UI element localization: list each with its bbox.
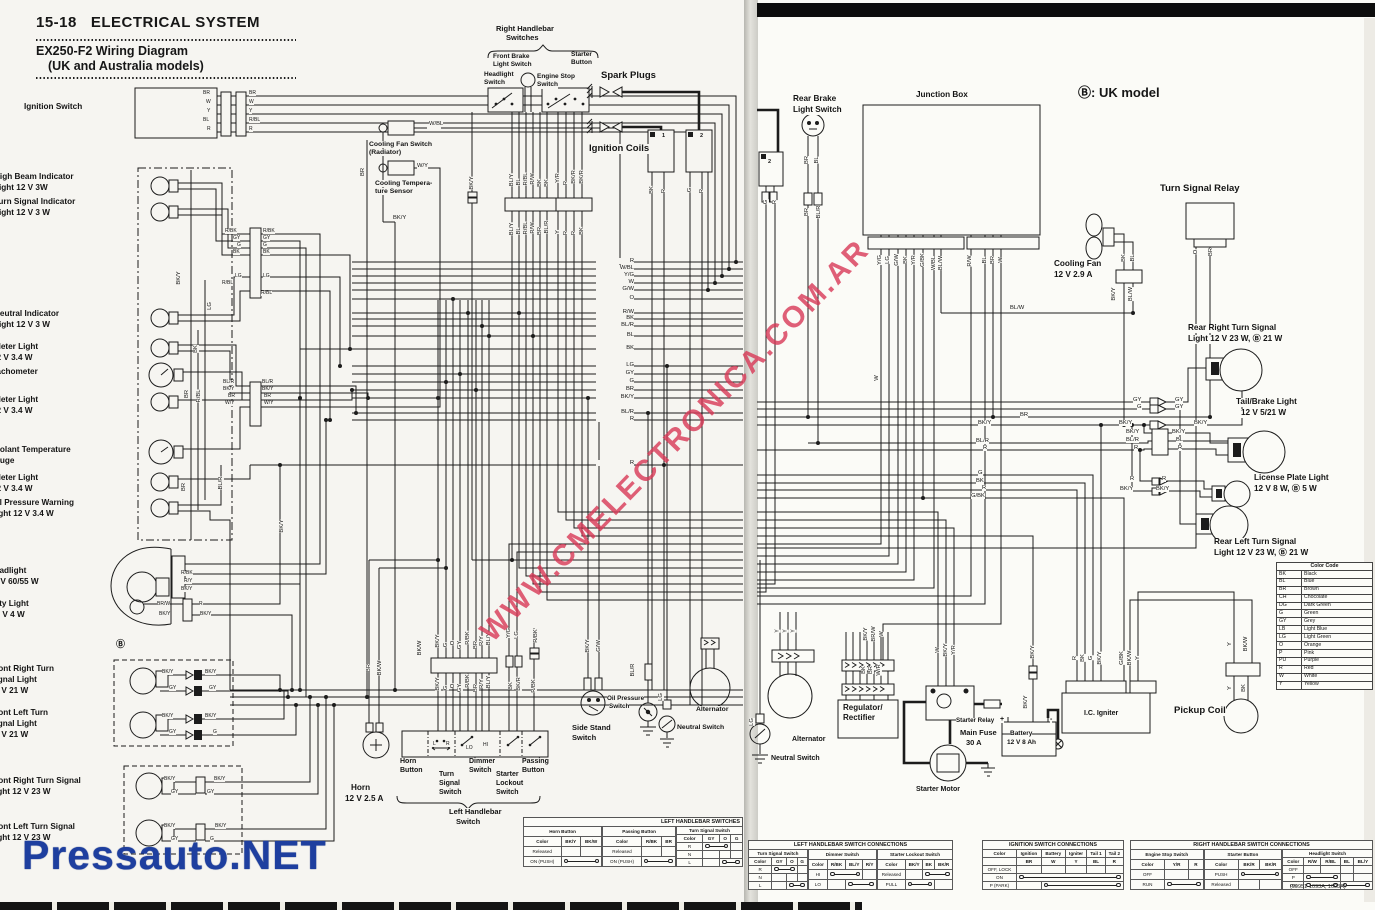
- wire-label: BR: [1020, 412, 1028, 418]
- wire-label: BK: [976, 478, 984, 484]
- wire-label: BK: [1121, 254, 1127, 262]
- wire-label: BK/Y: [1111, 287, 1117, 300]
- left-handlebar-connections-table: LEFT HANDLEBAR SWITCH CONNECTIONSTurn Si…: [748, 840, 953, 890]
- wire-label: BL: [1176, 437, 1183, 443]
- wire-label: BK: [861, 666, 867, 674]
- ignition-switch-connections-table: IGNITION SWITCH CONNECTIONSColorIgnition…: [982, 840, 1124, 890]
- wire-label: BL/R: [976, 438, 989, 444]
- wire-label: G/W: [894, 254, 900, 266]
- wire-label: BK/Y: [1120, 486, 1133, 492]
- wire-label: R: [982, 485, 986, 491]
- wire-label: BK: [1080, 654, 1086, 662]
- wire-label: Y: [783, 629, 788, 632]
- wire-label: R: [1162, 476, 1166, 482]
- wire-label: G: [978, 470, 983, 476]
- wire-label: R/W: [967, 255, 973, 266]
- wire-label: Y: [1227, 642, 1233, 646]
- wire-label: BK/Y: [1030, 645, 1036, 658]
- wire-label: Y: [1135, 656, 1141, 660]
- wire-label: BK/Y: [1156, 486, 1169, 492]
- wire-label: Y/R: [951, 645, 957, 655]
- wire-label: R: [772, 200, 778, 204]
- wire-label: GY: [1175, 404, 1183, 410]
- wire-label: Y: [775, 629, 780, 632]
- wire-label: BR: [990, 256, 996, 264]
- wire-label: W: [874, 375, 880, 380]
- wire-label: BL: [1130, 254, 1136, 261]
- wire-label: Y/R: [911, 255, 917, 265]
- wire-label: BL: [814, 156, 820, 163]
- wire-label: BK/Y: [943, 643, 949, 656]
- wire-label: LG: [885, 256, 891, 264]
- wire-label: BR: [1208, 248, 1214, 256]
- wire-label: BL/W: [1010, 305, 1024, 311]
- wire-label: G: [763, 200, 769, 205]
- wire-label: R: [1178, 445, 1182, 451]
- wire-label: GY: [1133, 397, 1141, 403]
- scanned-wiring-diagram-page: 15-18ELECTRICAL SYSTEM EX250-F2 Wiring D…: [0, 0, 1375, 910]
- wire-label: G/BK: [971, 493, 985, 499]
- wire-label: BK/Y: [1172, 429, 1185, 435]
- wire-label: BR: [868, 666, 874, 674]
- wire-label: W/R: [876, 664, 882, 675]
- wire-label: BL/R: [1126, 437, 1139, 443]
- left-handlebar-switch-table: LEFT HANDLEBAR SWITCHESHorn ButtonColorB…: [523, 817, 743, 867]
- wire-label: G: [1088, 656, 1094, 661]
- wire-label: BK/Y: [1126, 429, 1139, 435]
- wire-label: W: [879, 631, 885, 636]
- wire-label: BK/Y: [1119, 420, 1132, 426]
- wire-label: G/BK: [1119, 651, 1125, 665]
- wire-label: Y: [1227, 686, 1233, 690]
- wire-label: BK/Y: [1023, 695, 1029, 708]
- right-handlebar-connections-table: RIGHT HANDLEBAR SWITCH CONNECTIONSEngine…: [1130, 840, 1373, 890]
- wire-label: LG: [749, 718, 755, 726]
- wire-label: W: [935, 647, 941, 652]
- wire-label: R: [1130, 476, 1134, 482]
- wire-label: BK/Y: [1097, 651, 1103, 664]
- wire-label: BK: [903, 256, 909, 264]
- wire-label: R: [983, 445, 987, 451]
- wire-label: G: [1137, 404, 1142, 410]
- part-number-footnote: (99951-1093A, 1093A): [1290, 884, 1346, 890]
- wire-label: R: [1134, 445, 1138, 451]
- wire-label: G/BK: [920, 253, 926, 267]
- wire-label: BK/Y: [863, 627, 869, 640]
- right-wire-labels: BRBLBRBL/RGRY/GLGG/WBKY/RG/BKW/BLBL/WR/W…: [0, 0, 1375, 910]
- wire-label: BK/W: [1127, 651, 1133, 666]
- wire-label: Y/G: [877, 255, 883, 265]
- wire-label: BR/W: [871, 626, 877, 641]
- wire-label: -: [1050, 716, 1052, 723]
- wire-label: GY: [1175, 397, 1183, 403]
- wire-label: +: [1000, 716, 1004, 723]
- wire-label: W: [998, 257, 1004, 262]
- wire-label: O: [1193, 250, 1199, 255]
- wire-label: BL: [982, 256, 988, 263]
- blue-watermark: Pressauto.NET: [22, 832, 327, 879]
- wire-label: BK: [1241, 684, 1247, 692]
- wire-label: BK/W: [1243, 637, 1249, 652]
- wire-label: R: [1072, 656, 1078, 660]
- wire-label: Y: [791, 629, 796, 632]
- wire-label: BL/W: [938, 256, 944, 270]
- wire-label: BR: [804, 156, 810, 164]
- wire-label: BL/W: [1128, 287, 1134, 301]
- wire-label: BK/Y: [1194, 420, 1207, 426]
- wire-label: W/BL: [931, 256, 937, 270]
- color-code-table: Color CodeBKBlackBLBlueBRBrownCHChocolat…: [1276, 562, 1373, 690]
- wire-label: BL/R: [816, 206, 822, 219]
- wire-label: BK/Y: [978, 420, 991, 426]
- wire-label: BR: [804, 208, 810, 216]
